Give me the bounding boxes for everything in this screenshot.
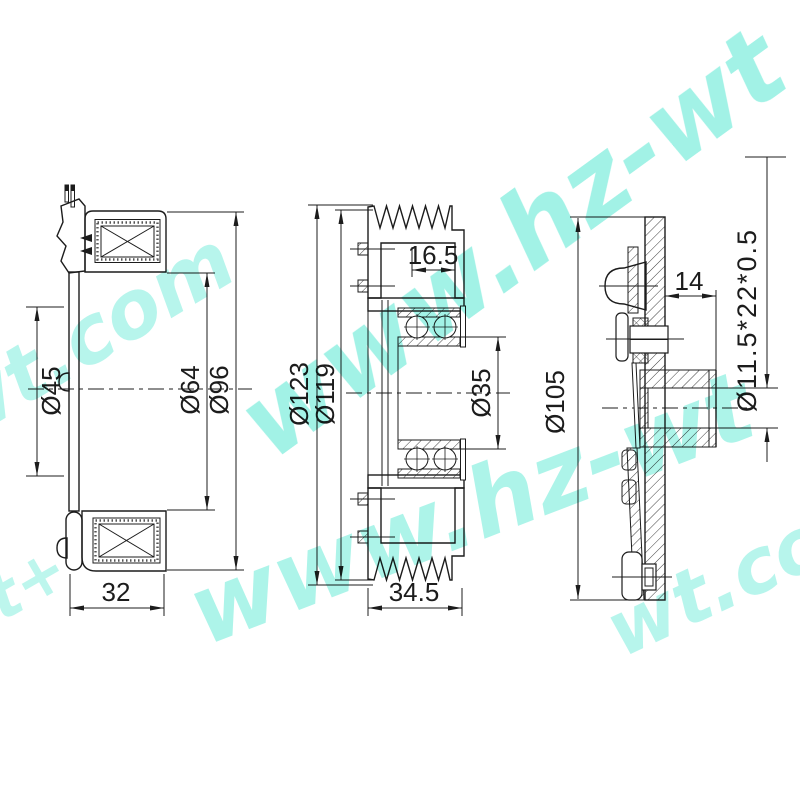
terminal-pin-tip [65, 185, 70, 191]
rivet-bushing [616, 313, 628, 361]
friction-strip-top [628, 247, 638, 313]
technical-drawing: Ø45 Ø64 Ø96 32 [0, 0, 800, 800]
coil-winding-bottom [93, 518, 160, 563]
bearing-inner-race [398, 440, 460, 449]
dim-width-32: 32 [70, 574, 164, 616]
coil-bracket [57, 199, 85, 273]
rivet-washer [633, 353, 648, 363]
watermark-text: t+ [0, 531, 80, 635]
dim-label-d64: Ø64 [175, 365, 205, 414]
rivet-washer [633, 318, 648, 326]
spade-terminal [80, 247, 92, 255]
dim-label-32: 32 [102, 577, 131, 607]
hub-rivet-assembly [606, 313, 684, 363]
spade-terminal [80, 234, 92, 242]
dim-label-d35: Ø35 [466, 368, 496, 417]
drawing-canvas: Ø45 Ø64 Ø96 32 [0, 0, 800, 800]
housing-cap [66, 512, 82, 570]
dim-label-14: 14 [675, 266, 704, 296]
terminal-pin-tip [71, 185, 76, 191]
